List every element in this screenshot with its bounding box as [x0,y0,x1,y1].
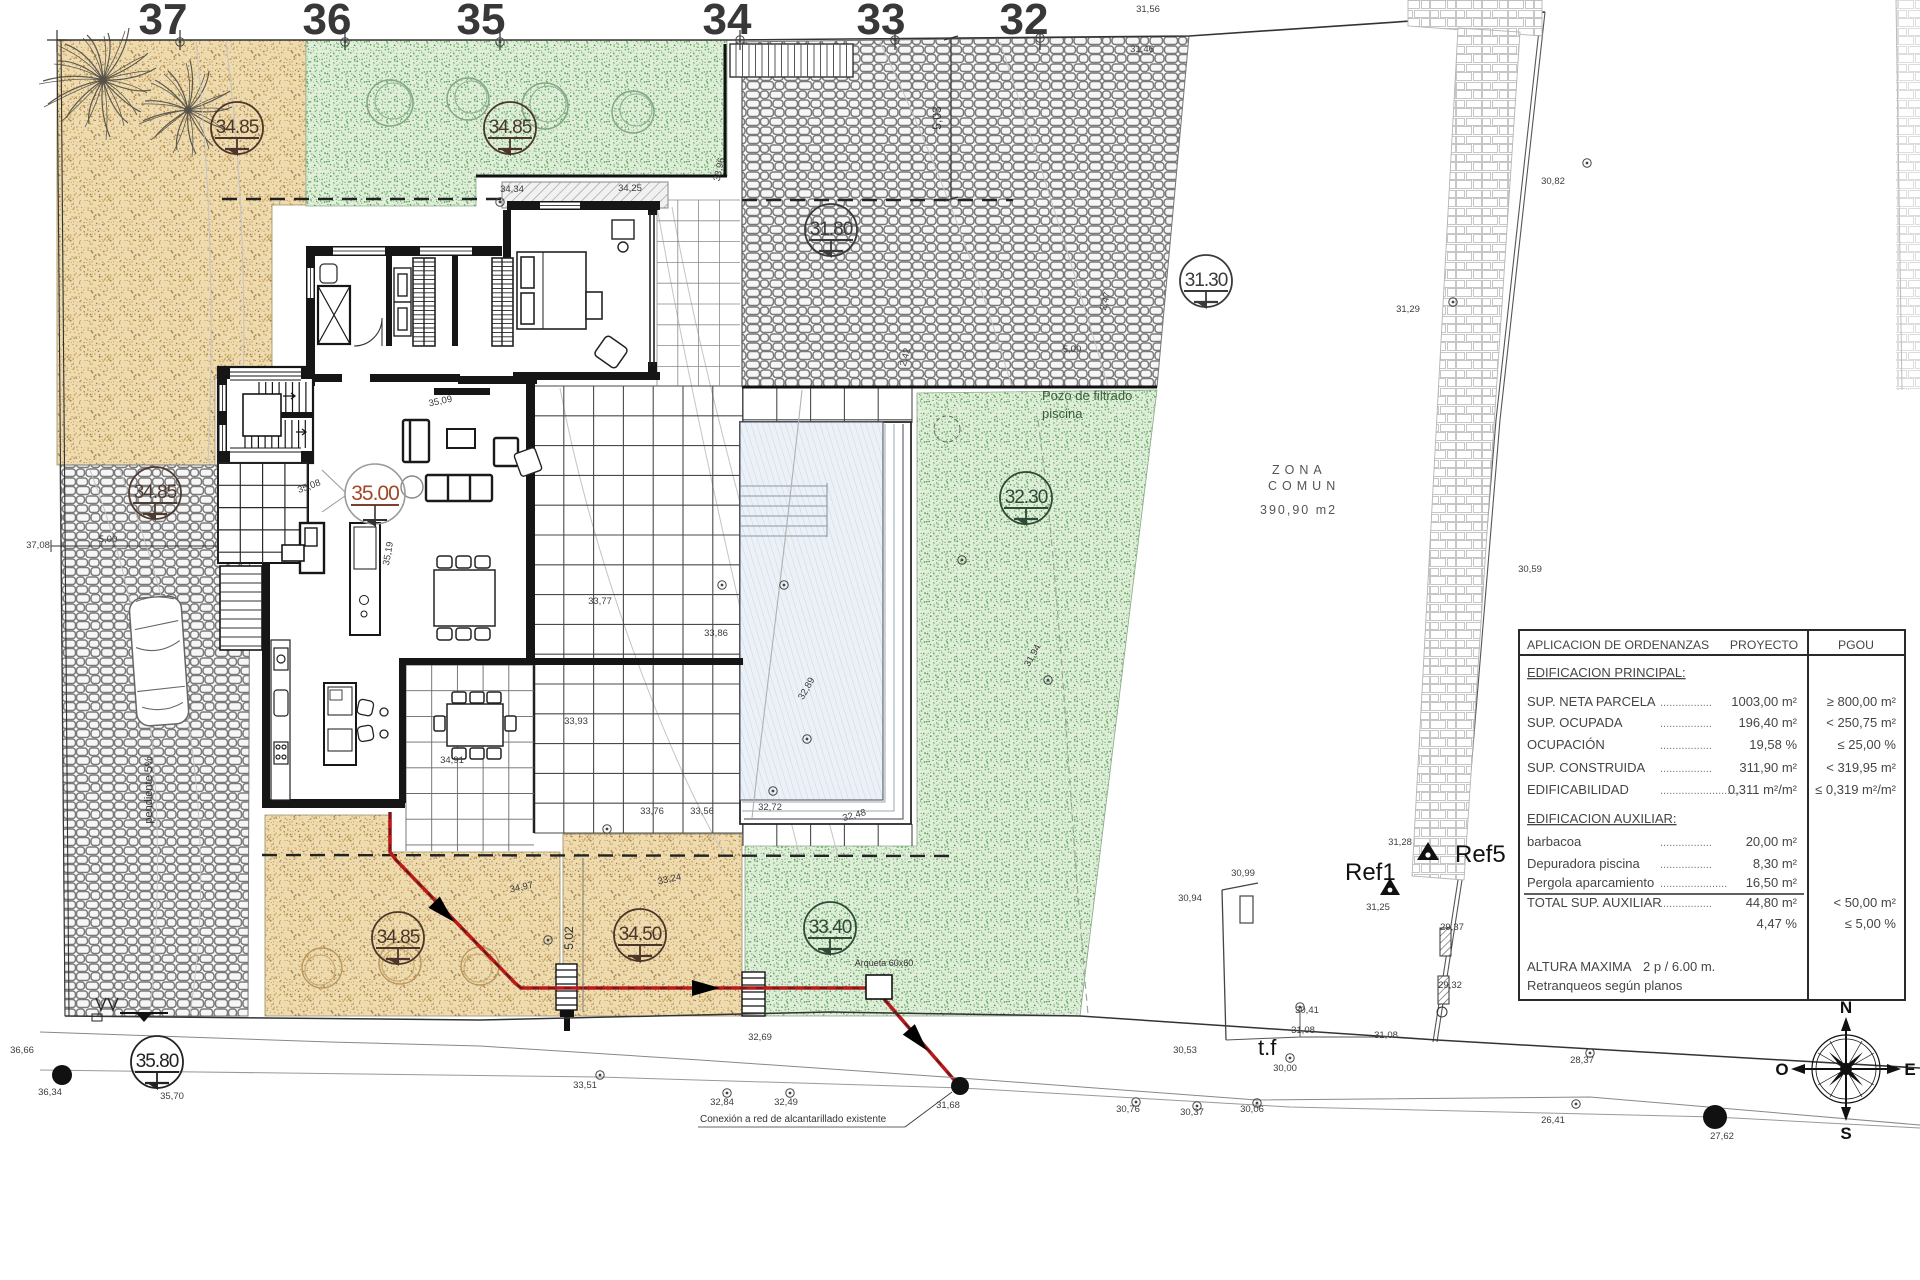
svg-text:PROYECTO: PROYECTO [1730,638,1798,652]
svg-text:34.85: 34.85 [216,117,259,138]
svg-text:SUP. CONSTRUIDA: SUP. CONSTRUIDA [1527,760,1646,775]
svg-text:30,82: 30,82 [1541,176,1565,187]
svg-text:ZONA: ZONA [1272,463,1327,477]
svg-text:390,90 m2: 390,90 m2 [1260,503,1337,517]
svg-text:31,25: 31,25 [1366,902,1390,913]
svg-text:4,47 %: 4,47 % [1757,916,1798,931]
svg-text:29,37: 29,37 [1440,922,1464,933]
svg-text:35.00: 35.00 [351,482,399,505]
svg-text:EDIFICABILIDAD: EDIFICABILIDAD [1527,782,1629,797]
svg-text:Depuradora piscina: Depuradora piscina [1527,856,1641,871]
svg-text:20,00 m²: 20,00 m² [1746,834,1798,849]
svg-text:29,32: 29,32 [1438,980,1462,991]
svg-text:33.40: 33.40 [809,917,852,938]
svg-text:piscina: piscina [1042,406,1083,421]
svg-text:33,86: 33,86 [704,628,728,639]
svg-text:30,41: 30,41 [1295,1005,1319,1016]
svg-text:34,34: 34,34 [500,184,524,195]
svg-text:32,69: 32,69 [748,1032,772,1043]
svg-text:33,77: 33,77 [588,596,612,607]
svg-text:t.f: t.f [1258,1035,1277,1060]
svg-text:Pergola aparcamiento: Pergola aparcamiento [1527,875,1654,890]
svg-text:pendiente 5%: pendiente 5% [143,756,155,823]
svg-text:.................: ................. [1660,859,1712,871]
svg-text:EDIFICACION PRINCIPAL:: EDIFICACION PRINCIPAL: [1527,665,1686,680]
svg-text:32: 32 [1000,0,1049,44]
svg-text:35.80: 35.80 [136,1051,179,1072]
svg-text:S: S [1840,1124,1851,1143]
svg-text:37,08: 37,08 [26,540,50,551]
svg-text:2 p / 6.00 m.: 2 p / 6.00 m. [1643,959,1715,974]
svg-text:34.85: 34.85 [377,927,420,948]
svg-text:33,56: 33,56 [690,806,714,817]
svg-text:35: 35 [457,0,506,44]
svg-text:34,25: 34,25 [618,183,642,194]
svg-text:33,93: 33,93 [564,716,588,727]
svg-text:Arqueta 60x60: Arqueta 60x60 [855,958,914,968]
svg-text:30,37: 30,37 [1180,1107,1204,1118]
svg-text:......................: ...................... [1660,878,1727,890]
svg-text:OCUPACIÓN: OCUPACIÓN [1527,737,1605,752]
svg-text:31,08: 31,08 [1374,1030,1398,1041]
svg-text:32.30: 32.30 [1005,487,1048,508]
svg-text:16,50 m²: 16,50 m² [1746,875,1798,890]
svg-text:30,99: 30,99 [1231,868,1255,879]
svg-text:E: E [1904,1060,1915,1079]
svg-text:311,90 m²: 311,90 m² [1739,760,1797,775]
svg-text:31,56: 31,56 [1136,4,1160,15]
svg-text:26,41: 26,41 [1541,1115,1565,1126]
svg-text:33: 33 [857,0,906,44]
svg-text:36: 36 [303,0,352,44]
svg-text:30,06: 30,06 [1240,1104,1264,1115]
svg-text:Pozo de filtrado: Pozo de filtrado [1042,388,1132,403]
svg-text:28,37: 28,37 [1570,1055,1594,1066]
svg-text:Retranqueos según planos: Retranqueos según planos [1527,978,1683,993]
svg-text:< 50,00 m²: < 50,00 m² [1833,895,1896,910]
svg-text:5,02: 5,02 [562,926,576,950]
svg-text:34.85: 34.85 [489,117,532,138]
svg-text:.................: ................. [1660,763,1712,775]
svg-text:≥ 800,00 m²: ≥ 800,00 m² [1827,694,1897,709]
svg-text:34.50: 34.50 [619,924,662,945]
svg-text:Ref5: Ref5 [1455,841,1506,868]
svg-text:34.85: 34.85 [134,482,177,503]
svg-text:PGOU: PGOU [1838,638,1874,652]
svg-text:≤ 25,00 %: ≤ 25,00 % [1838,737,1897,752]
svg-text:ALTURA MAXIMA: ALTURA MAXIMA [1527,959,1632,974]
svg-text:≤ 5,00 %: ≤ 5,00 % [1845,916,1897,931]
svg-text:32,84: 32,84 [710,1097,734,1108]
svg-text:32,72: 32,72 [758,802,782,813]
svg-text:35,70: 35,70 [160,1091,184,1102]
svg-text:barbacoa: barbacoa [1527,834,1582,849]
svg-text:5,00: 5,00 [99,534,118,545]
svg-text:37: 37 [139,0,188,44]
svg-text:30,00: 30,00 [1273,1063,1297,1074]
svg-text:36,34: 36,34 [38,1087,62,1098]
svg-text:31.80: 31.80 [810,219,853,240]
svg-text:< 250,75 m²: < 250,75 m² [1826,715,1896,730]
svg-text:34: 34 [703,0,752,44]
svg-text:N: N [1840,998,1852,1017]
svg-text:O: O [1775,1060,1788,1079]
svg-text:196,40 m²: 196,40 m² [1738,715,1797,730]
svg-text:5,03: 5,03 [930,106,944,130]
svg-text:31.30: 31.30 [1185,270,1228,291]
svg-text:32,49: 32,49 [774,1097,798,1108]
svg-text:30,94: 30,94 [1178,893,1202,904]
svg-text:.................: ................. [1660,697,1712,709]
svg-text:30,59: 30,59 [1518,564,1542,575]
svg-text:.................: ................. [1660,740,1712,752]
svg-text:27,62: 27,62 [1710,1131,1734,1142]
svg-text:5,00: 5,00 [1063,344,1082,355]
svg-text:44,80 m²: 44,80 m² [1746,895,1798,910]
svg-text:.................: ................. [1660,837,1712,849]
svg-text:0,311 m²/m²: 0,311 m²/m² [1728,782,1798,797]
svg-text:COMUN: COMUN [1268,479,1340,493]
svg-text:30,76: 30,76 [1116,1104,1140,1115]
svg-text:.................: ................. [1660,718,1712,730]
svg-text:Ref1: Ref1 [1345,859,1396,886]
svg-text:31,29: 31,29 [1396,304,1420,315]
svg-text:≤ 0,319 m²/m²: ≤ 0,319 m²/m² [1815,782,1896,797]
svg-text:< 319,95 m²: < 319,95 m² [1826,760,1896,775]
svg-text:30,53: 30,53 [1173,1045,1197,1056]
svg-text:36,66: 36,66 [10,1045,34,1056]
svg-text:.................: ................. [1660,898,1712,910]
svg-text:33,76: 33,76 [640,806,664,817]
svg-text:TOTAL SUP. AUXILIAR: TOTAL SUP. AUXILIAR [1527,895,1662,910]
svg-text:33,51: 33,51 [573,1080,597,1091]
svg-text:EDIFICACION AUXILIAR:: EDIFICACION AUXILIAR: [1527,811,1677,826]
svg-text:1003,00 m²: 1003,00 m² [1731,694,1797,709]
svg-text:Conexión a red de alcantarilla: Conexión a red de alcantarillado existen… [700,1114,887,1125]
svg-text:19,58 %: 19,58 % [1749,737,1797,752]
svg-text:APLICACION DE ORDENANZAS: APLICACION DE ORDENANZAS [1527,638,1709,652]
svg-text:34,91: 34,91 [440,755,464,766]
svg-text:31,08: 31,08 [1291,1025,1315,1036]
svg-text:8,30 m²: 8,30 m² [1753,856,1798,871]
svg-text:SUP. NETA PARCELA: SUP. NETA PARCELA [1527,694,1656,709]
svg-text:31,28: 31,28 [1388,837,1412,848]
svg-text:31,46: 31,46 [1130,44,1154,55]
svg-text:SUP. OCUPADA: SUP. OCUPADA [1527,715,1623,730]
